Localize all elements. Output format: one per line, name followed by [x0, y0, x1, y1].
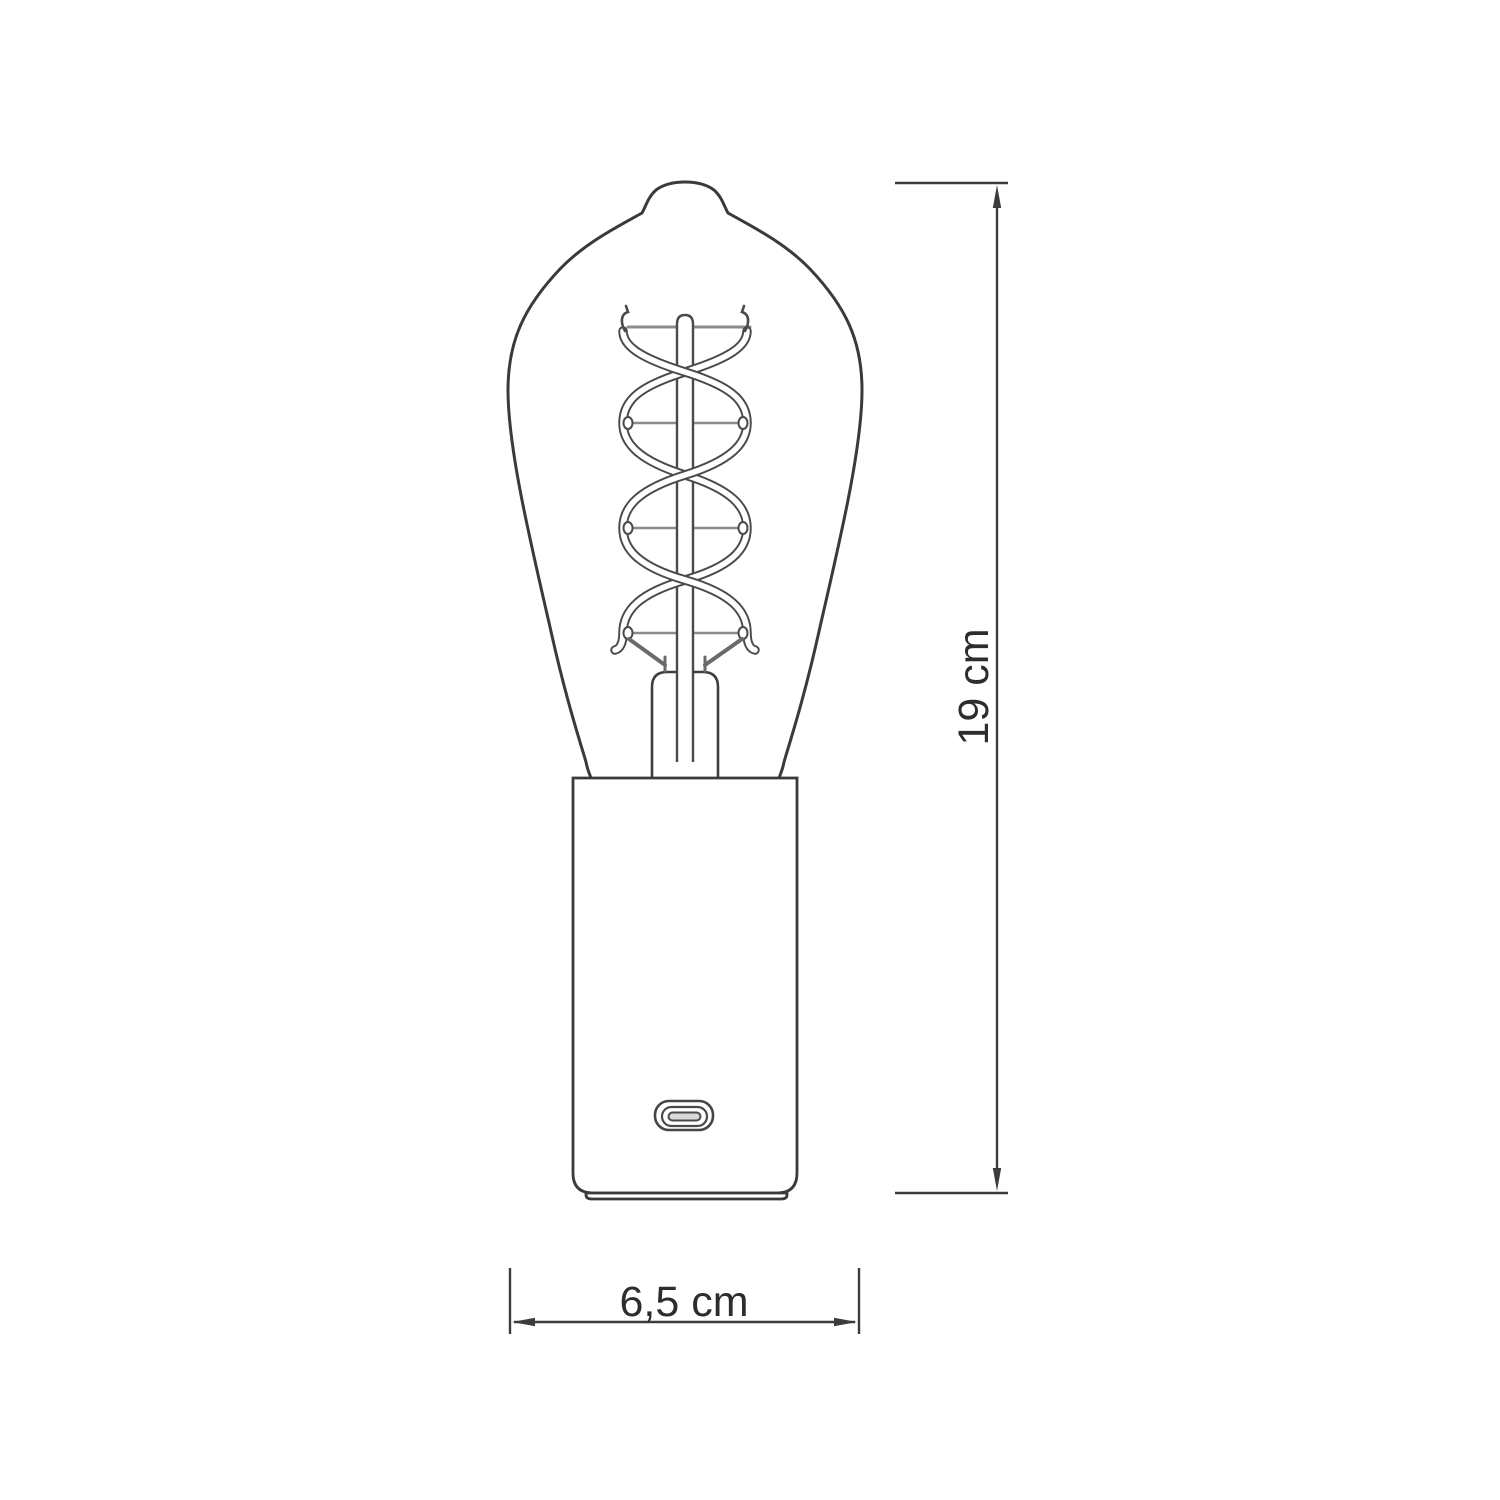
height-arrow-up-icon	[993, 185, 1001, 208]
width-dimension: 6,5 cm	[510, 1268, 859, 1334]
height-dimension: 19 cm	[895, 183, 1008, 1193]
width-dimension-label: 6,5 cm	[619, 1278, 748, 1326]
usb-c-port-icon	[655, 1101, 713, 1130]
height-dimension-label: 19 cm	[950, 628, 998, 745]
width-arrow-left-icon	[512, 1318, 535, 1326]
base-foot-plate	[586, 1193, 787, 1199]
filament-assembly	[615, 306, 755, 779]
height-arrow-down-icon	[993, 1168, 1001, 1191]
width-arrow-right-icon	[834, 1318, 857, 1326]
glass-stem-rod	[677, 315, 693, 762]
dimension-diagram-svg: 19 cm 6,5 cm	[0, 0, 1500, 1500]
lamp-base	[573, 778, 797, 1199]
dimension-diagram: 19 cm 6,5 cm	[0, 0, 1500, 1500]
